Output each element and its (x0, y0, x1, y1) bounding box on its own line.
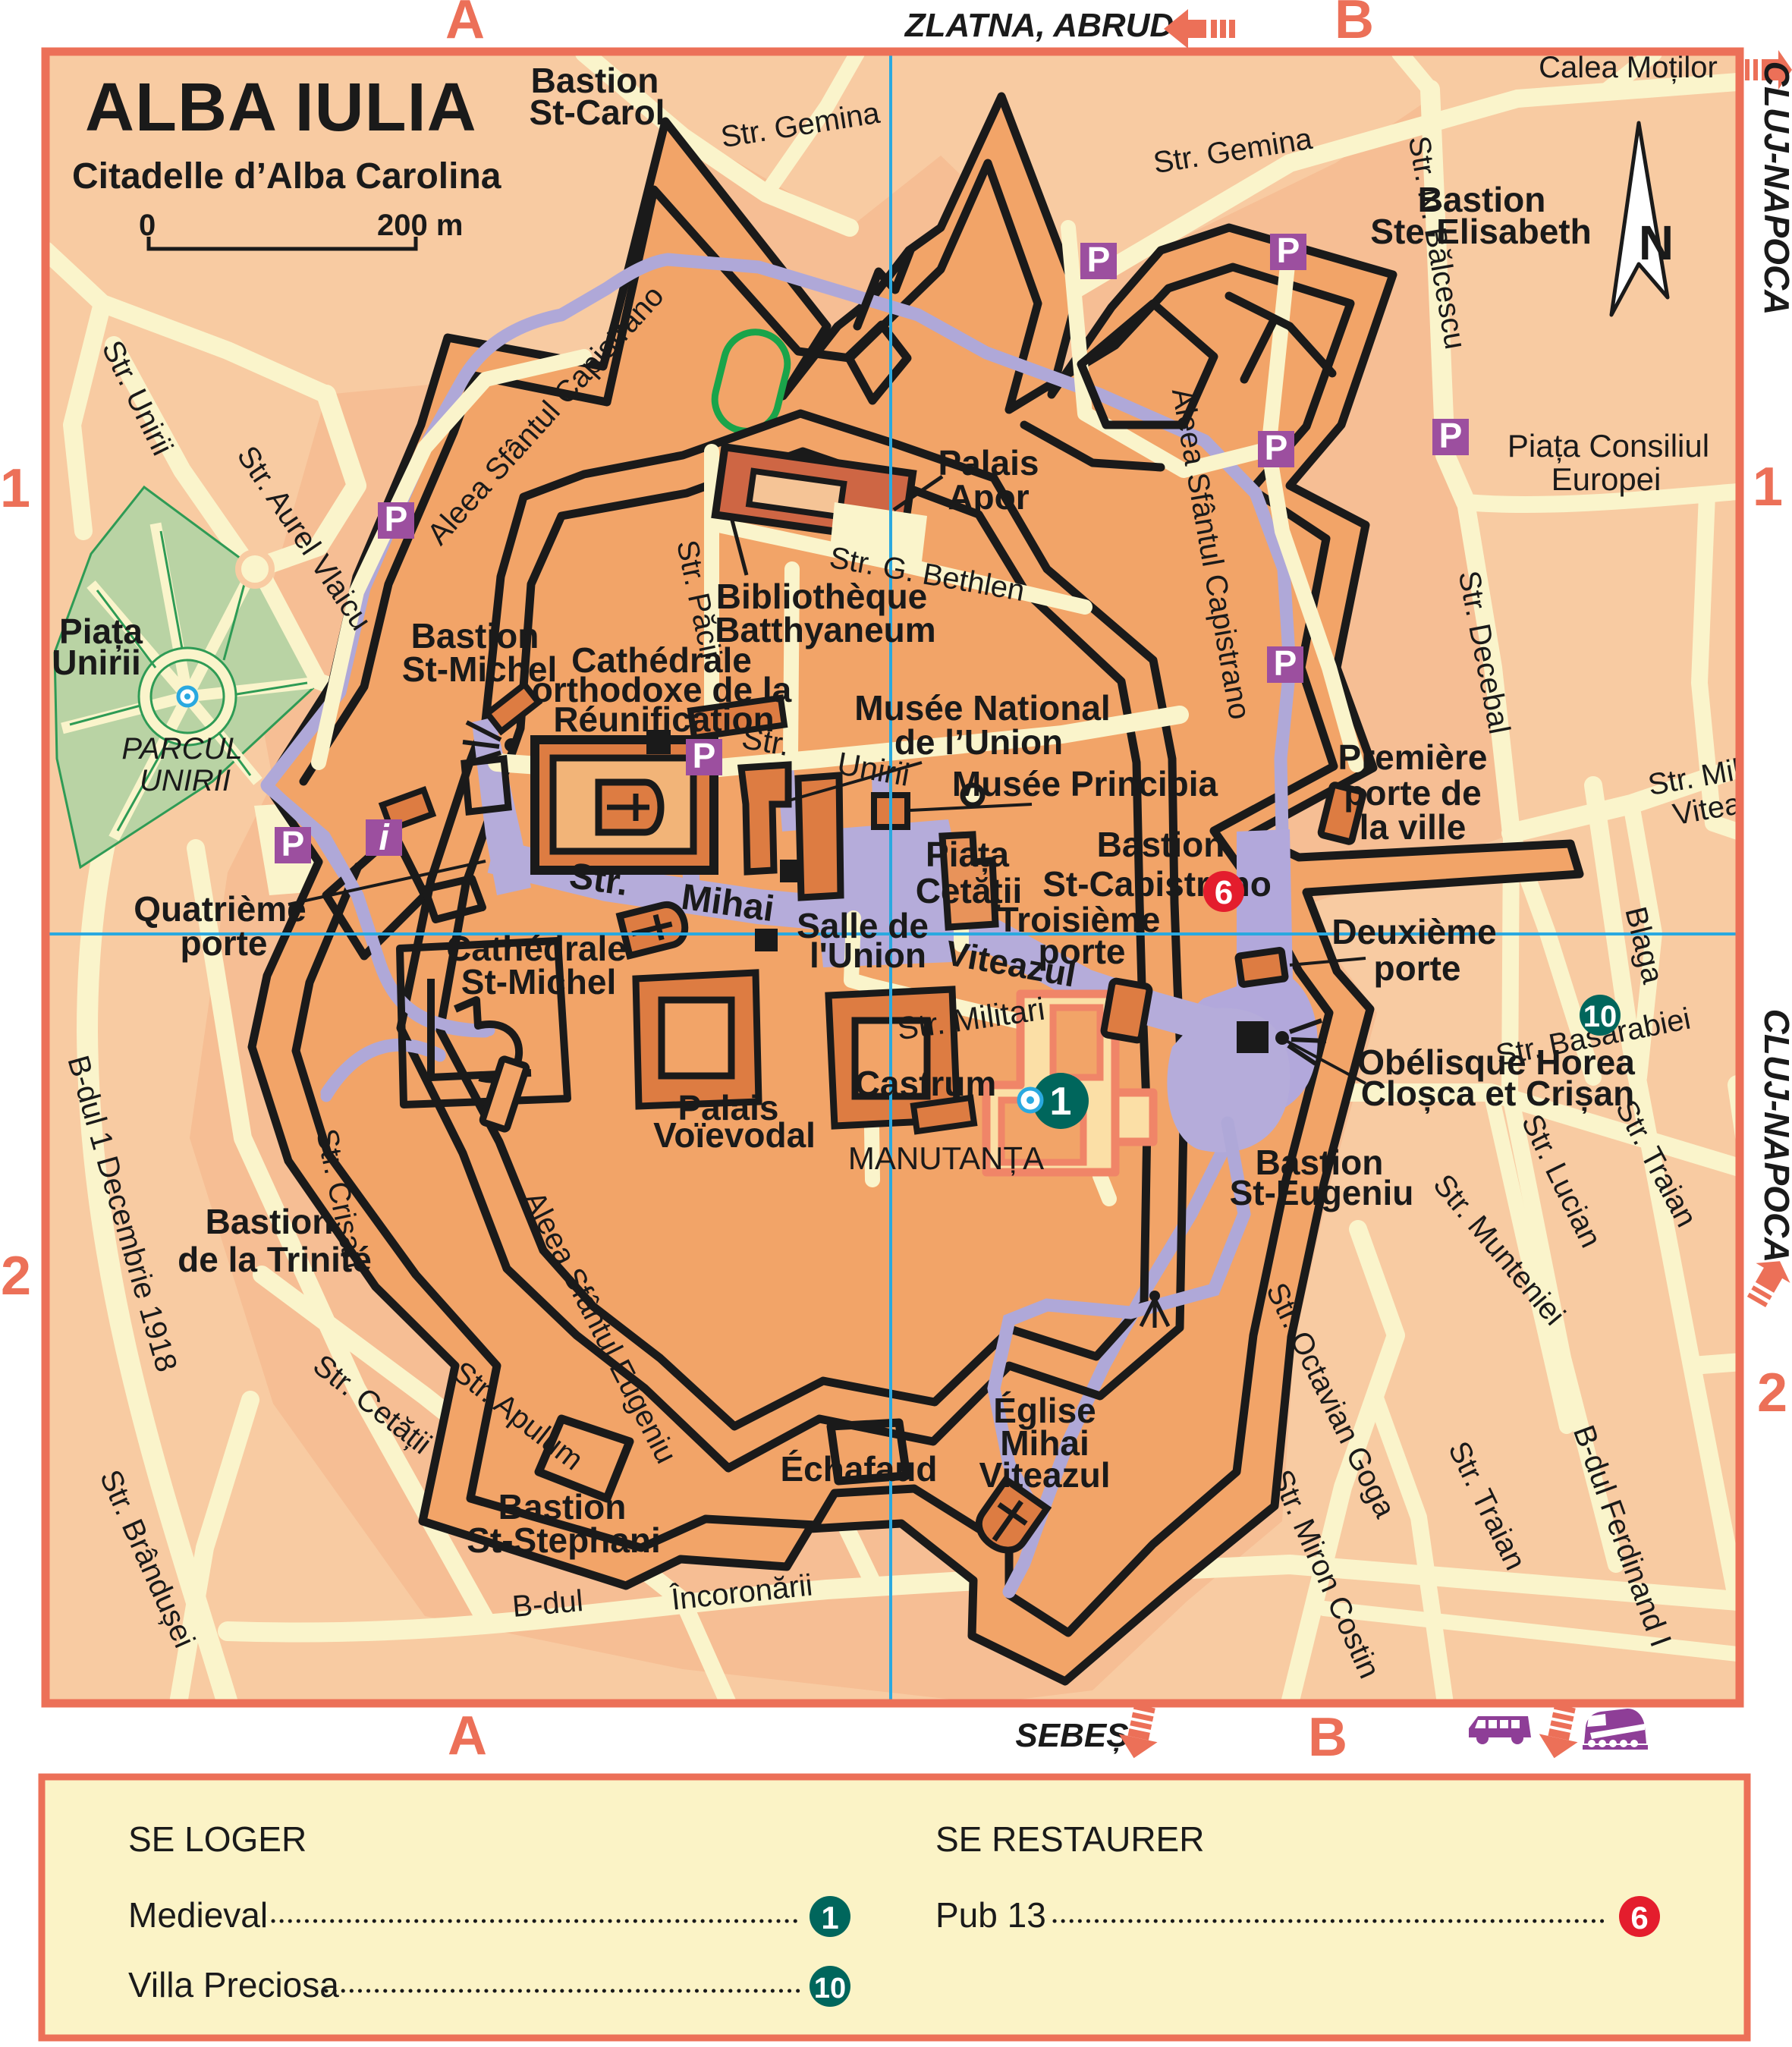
svg-text:10: 10 (1583, 1000, 1618, 1033)
svg-text:Villa Preciosa: Villa Preciosa (128, 1965, 339, 2005)
svg-text:UNIRII: UNIRII (140, 764, 231, 797)
svg-text:St-Carol: St-Carol (530, 93, 665, 132)
svg-text:SE LOGER: SE LOGER (128, 1819, 307, 1859)
svg-text:de la Trinité: de la Trinité (178, 1240, 372, 1279)
svg-text:Piața Consiliul: Piața Consiliul (1507, 428, 1709, 464)
svg-text:Cloșca et Crișan: Cloșca et Crișan (1361, 1074, 1634, 1114)
svg-text:200 m: 200 m (377, 209, 463, 242)
svg-text:Piața: Piața (926, 835, 1009, 875)
svg-text:Bastion: Bastion (1097, 825, 1225, 864)
svg-text:CLUJ-NAPOCA: CLUJ-NAPOCA (1757, 1009, 1792, 1263)
svg-text:2: 2 (1757, 1363, 1787, 1423)
svg-text:P: P (281, 824, 305, 863)
svg-text:10: 10 (814, 1973, 846, 2005)
svg-text:P: P (1274, 643, 1297, 683)
svg-text:porte: porte (1374, 948, 1461, 988)
svg-text:Str.: Str. (567, 856, 630, 904)
svg-text:B: B (1308, 1707, 1347, 1768)
svg-text:Deuxième: Deuxième (1331, 912, 1496, 951)
svg-text:P: P (1265, 428, 1288, 467)
svg-text:ALBA IULIA: ALBA IULIA (85, 70, 477, 146)
svg-text:Castrum: Castrum (855, 1064, 997, 1103)
svg-text:Musée Principia: Musée Principia (952, 764, 1218, 803)
svg-text:P: P (385, 499, 408, 539)
svg-text:A: A (445, 0, 485, 50)
svg-text:Échafaud: Échafaud (780, 1449, 937, 1489)
svg-text:SEBEȘ: SEBEȘ (1015, 1717, 1128, 1754)
svg-text:Ste-Elisabeth: Ste-Elisabeth (1370, 212, 1591, 251)
svg-text:Apor: Apor (948, 477, 1029, 517)
svg-text:CLUJ-NAPOCA: CLUJ-NAPOCA (1757, 61, 1792, 316)
svg-text:Unirii: Unirii (52, 643, 141, 682)
svg-text:1: 1 (1050, 1080, 1072, 1124)
svg-text:Calea Moților: Calea Moților (1539, 51, 1718, 84)
svg-text:A: A (448, 1706, 487, 1766)
svg-text:P: P (693, 736, 716, 775)
svg-text:Première: Première (1338, 737, 1488, 777)
svg-text:PARCUL: PARCUL (121, 732, 242, 766)
svg-text:ZLATNA, ABRUD: ZLATNA, ABRUD (904, 7, 1174, 44)
svg-text:N: N (1639, 215, 1674, 270)
svg-text:MANUTANȚA: MANUTANȚA (848, 1140, 1044, 1176)
svg-text:St-Eugeniu: St-Eugeniu (1230, 1173, 1414, 1212)
svg-text:de l’Union: de l’Union (894, 722, 1063, 762)
svg-text:Bastion: Bastion (206, 1202, 334, 1241)
svg-text:St-Michel: St-Michel (461, 962, 616, 1001)
svg-text:1: 1 (821, 1900, 838, 1935)
svg-text:la ville: la ville (1360, 807, 1467, 847)
svg-text:Europei: Europei (1551, 461, 1662, 497)
svg-text:P: P (1087, 240, 1111, 279)
svg-text:6: 6 (1215, 874, 1233, 911)
svg-text:1: 1 (0, 458, 30, 519)
svg-text:Medieval: Medieval (128, 1895, 268, 1935)
svg-text:P: P (1439, 416, 1463, 455)
svg-text:Pub 13: Pub 13 (935, 1895, 1046, 1935)
svg-text:1: 1 (1753, 457, 1783, 517)
svg-text:l'Union: l'Union (810, 935, 926, 975)
svg-text:Viteazul: Viteazul (979, 1455, 1111, 1495)
svg-text:P: P (1277, 231, 1300, 270)
svg-text:porte: porte (181, 923, 268, 963)
svg-text:B-dul: B-dul (511, 1584, 584, 1624)
svg-text:6: 6 (1630, 1900, 1648, 1935)
svg-text:i: i (379, 818, 390, 858)
svg-text:B: B (1335, 0, 1374, 50)
svg-text:Voïevodal: Voïevodal (653, 1115, 816, 1155)
svg-text:2: 2 (1, 1246, 31, 1306)
svg-text:SE RESTAURER: SE RESTAURER (935, 1819, 1204, 1859)
svg-text:Citadelle d’Alba Carolina: Citadelle d’Alba Carolina (72, 156, 501, 197)
svg-text:St-Stephani: St-Stephani (467, 1520, 661, 1560)
